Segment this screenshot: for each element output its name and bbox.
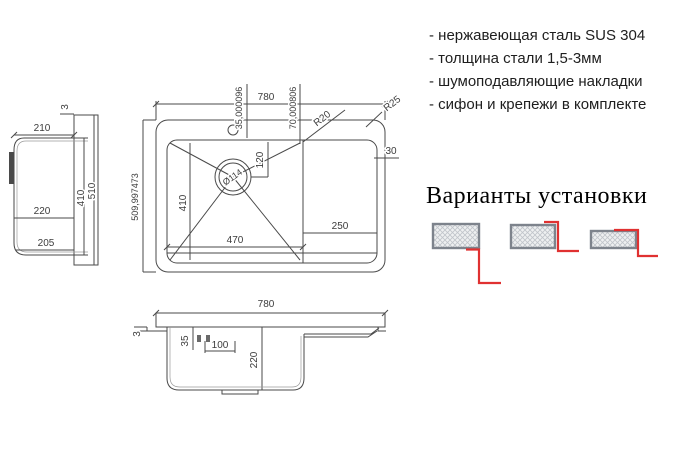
- dim-bowl-length: 470: [227, 235, 244, 246]
- clip-mark-icon: [197, 335, 201, 342]
- installation-options: [433, 222, 658, 283]
- front-view: 780 3 35 100 220: [132, 299, 388, 394]
- dim-clip-span: 100: [212, 340, 229, 351]
- dim-side-inner-depth: 410: [76, 189, 87, 206]
- dim-rim-width: 30: [385, 146, 397, 157]
- clip-mark-icon: [9, 152, 14, 184]
- dim-hole-a: 35,000096: [234, 87, 244, 130]
- dim-side-bottom-width: 205: [38, 238, 55, 249]
- top-feature-lines: [164, 110, 399, 263]
- dim-radius-outer: R25: [382, 94, 404, 114]
- dim-hole-b: 70,000806: [288, 87, 298, 130]
- installation-option-flush: [511, 222, 579, 251]
- dim-bowl-width: 410: [178, 194, 189, 211]
- sink-section: [591, 231, 636, 248]
- dim-overall-depth: 509,997473: [130, 173, 140, 221]
- technical-drawing: 3 210 220 205 410 510 780 35,000096 70,0…: [0, 0, 700, 466]
- drawing-page: - нержавеющая сталь SUS 304 - толщина ст…: [0, 0, 700, 466]
- dim-wing-width: 250: [332, 221, 349, 232]
- dim-front-lip: 3: [132, 331, 143, 337]
- counter-line: [466, 250, 501, 284]
- dim-drain-diameter: Ø114: [221, 167, 244, 187]
- dim-side-mid-width: 220: [34, 206, 51, 217]
- dim-drain-offset: 120: [255, 151, 266, 168]
- dim-side-lip: 3: [60, 104, 71, 110]
- top-outer-dimension-lines: [143, 84, 388, 272]
- dim-bowl-depth: 220: [249, 351, 260, 368]
- front-rim-bar: [156, 313, 385, 327]
- dim-side-top-width: 210: [34, 123, 51, 134]
- sink-section: [511, 225, 555, 248]
- sink-section: [433, 224, 479, 248]
- dim-top-overall-width: 780: [258, 92, 275, 103]
- side-view: 3 210 220 205 410 510: [9, 104, 98, 265]
- installation-option-overmount: [433, 224, 501, 283]
- dim-radius-inner: R20: [312, 109, 334, 129]
- clip-mark-icon: [206, 335, 210, 342]
- dim-front-overall-width: 780: [258, 299, 275, 310]
- front-feature-lines: [134, 310, 388, 394]
- installation-option-undermount: [591, 230, 658, 256]
- dim-side-overall-depth: 510: [87, 182, 98, 199]
- top-view: 780 35,000096 70,000806 R25 R20 30 120 Ø…: [130, 84, 403, 272]
- dim-clip-drop: 35: [180, 335, 191, 347]
